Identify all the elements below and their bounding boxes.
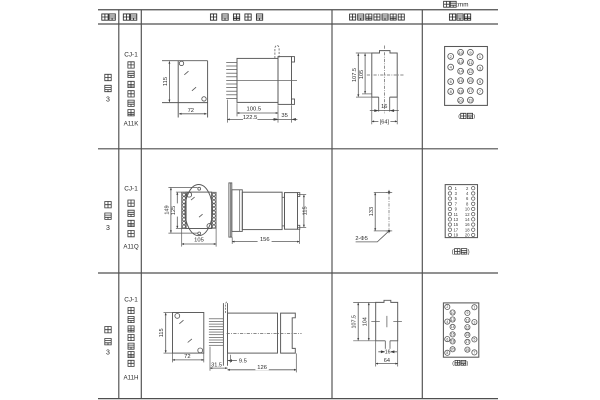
svg-text:149: 149 xyxy=(164,205,170,214)
svg-text:[64]: [64] xyxy=(380,119,390,125)
svg-text:(: ( xyxy=(452,250,454,256)
svg-text:10: 10 xyxy=(451,311,455,315)
svg-text:CJ-1: CJ-1 xyxy=(124,186,138,193)
svg-text:): ) xyxy=(468,250,470,256)
svg-text:): ) xyxy=(473,114,475,120)
svg-text:7: 7 xyxy=(473,351,475,355)
svg-text:16: 16 xyxy=(451,333,455,337)
svg-text:12: 12 xyxy=(466,326,470,330)
svg-text:72: 72 xyxy=(188,108,194,114)
svg-text:1: 1 xyxy=(473,306,475,310)
svg-text:18: 18 xyxy=(451,340,455,344)
svg-text:115: 115 xyxy=(159,328,165,337)
svg-text:122.5: 122.5 xyxy=(243,115,258,121)
svg-text:5: 5 xyxy=(479,79,481,84)
svg-text:6: 6 xyxy=(450,79,452,84)
svg-text:72: 72 xyxy=(184,354,190,360)
svg-text:3: 3 xyxy=(106,225,110,232)
svg-text::mm: :mm xyxy=(456,2,468,9)
svg-text:9.5: 9.5 xyxy=(239,359,247,365)
svg-text:1: 1 xyxy=(479,54,481,59)
svg-text:20: 20 xyxy=(451,348,455,352)
svg-text:3: 3 xyxy=(479,65,481,70)
svg-text:A11H: A11H xyxy=(123,375,138,382)
svg-text:17: 17 xyxy=(468,88,472,93)
svg-text:8: 8 xyxy=(446,351,448,355)
svg-text:19: 19 xyxy=(466,348,470,352)
svg-text:4: 4 xyxy=(446,320,448,324)
svg-text:16: 16 xyxy=(385,350,391,356)
svg-text:115: 115 xyxy=(163,77,169,86)
svg-text:3: 3 xyxy=(106,350,110,357)
svg-text:14: 14 xyxy=(451,325,455,329)
svg-text:13: 13 xyxy=(451,318,455,322)
svg-text:20: 20 xyxy=(465,233,470,238)
svg-text:2-Φ5: 2-Φ5 xyxy=(355,236,368,242)
svg-text:A11Q: A11Q xyxy=(123,243,139,250)
svg-text:115: 115 xyxy=(303,206,309,215)
svg-text:156: 156 xyxy=(260,237,270,243)
svg-text:8: 8 xyxy=(450,89,452,94)
svg-text:9: 9 xyxy=(466,311,468,315)
svg-text:9: 9 xyxy=(469,50,471,55)
svg-text:18: 18 xyxy=(458,88,462,93)
svg-text:CJ-1: CJ-1 xyxy=(124,52,138,59)
svg-text:19: 19 xyxy=(468,98,472,103)
svg-text:12: 12 xyxy=(468,69,472,74)
svg-text:2: 2 xyxy=(450,54,452,59)
svg-text:16: 16 xyxy=(458,78,462,83)
svg-text:11: 11 xyxy=(468,60,472,65)
svg-text:35: 35 xyxy=(281,113,287,119)
svg-text:105: 105 xyxy=(194,238,204,244)
svg-text:15: 15 xyxy=(466,333,470,337)
svg-text:): ) xyxy=(467,361,469,367)
svg-text:7: 7 xyxy=(479,89,481,94)
svg-text:6: 6 xyxy=(446,337,448,341)
svg-text:126: 126 xyxy=(257,365,267,371)
svg-text:133: 133 xyxy=(369,207,375,216)
svg-text:31.5: 31.5 xyxy=(211,362,222,368)
svg-text:15: 15 xyxy=(468,78,472,83)
svg-text:125: 125 xyxy=(171,206,177,215)
svg-text:16: 16 xyxy=(381,104,387,110)
svg-text:3: 3 xyxy=(473,320,475,324)
svg-text:107.5: 107.5 xyxy=(352,315,358,329)
svg-text:A11K: A11K xyxy=(124,120,140,127)
svg-text:17: 17 xyxy=(466,340,470,344)
svg-text:64: 64 xyxy=(384,358,390,364)
svg-text:19: 19 xyxy=(453,233,458,238)
svg-text:CJ-1: CJ-1 xyxy=(124,296,138,303)
svg-text:105: 105 xyxy=(359,70,365,79)
svg-text:107.5: 107.5 xyxy=(352,68,358,82)
svg-text:100.5: 100.5 xyxy=(247,107,262,113)
svg-text:(: ( xyxy=(458,114,460,120)
svg-text:(: ( xyxy=(452,361,454,367)
svg-text:2: 2 xyxy=(446,305,448,309)
svg-text:5: 5 xyxy=(473,338,475,342)
svg-text:3: 3 xyxy=(106,97,110,104)
svg-text:13: 13 xyxy=(458,59,462,64)
svg-text:11: 11 xyxy=(466,318,470,322)
svg-text:104: 104 xyxy=(362,317,368,326)
